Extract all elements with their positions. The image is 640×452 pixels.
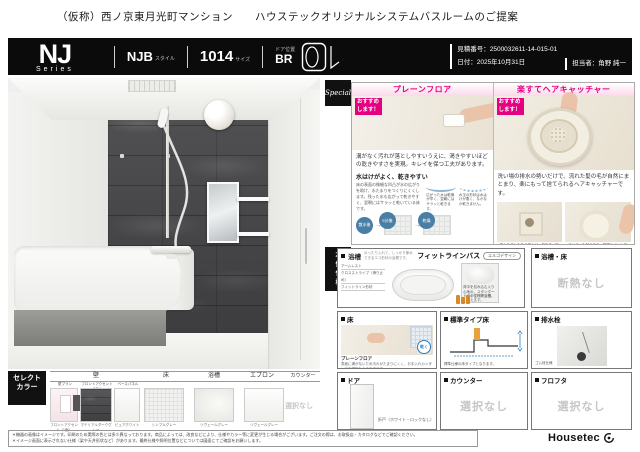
person-label: 担当者： bbox=[572, 60, 598, 67]
ceiling-vent-icon bbox=[128, 80, 176, 92]
dry-stamp: 乾く bbox=[417, 340, 431, 354]
wall-hook bbox=[120, 154, 124, 158]
special-panels: プレーンフロア おすすめ します！ 溝がなく汚れが落としやすいうえに、渇きやすい… bbox=[351, 82, 635, 245]
divider bbox=[187, 46, 188, 68]
step-circle: 散水後 bbox=[356, 217, 373, 234]
floor-tile-sample: 乾燥 bbox=[423, 215, 451, 235]
panel2-body: 洗い場の排水の勢いだけで、流れた髪の毛が自然にまとまり、楽にもって捨てられるヘア… bbox=[494, 170, 635, 200]
mirror bbox=[207, 182, 239, 243]
door-position-value: BR bbox=[275, 53, 295, 65]
series-logo: NJ Series bbox=[36, 41, 74, 73]
bathtub-product-name: フィットラインバス bbox=[417, 251, 480, 261]
spec-counter: カウンター 選択なし bbox=[440, 372, 528, 430]
lid-header: フロフタ bbox=[535, 375, 628, 385]
shampoo-bottles-icon bbox=[456, 295, 470, 304]
footer-notes: ＊機器の画像はイメージです。印刷のため実際の色とは多少異なっております。商品によ… bbox=[8, 430, 478, 447]
bathtub-swatch bbox=[194, 388, 234, 422]
divider bbox=[262, 46, 263, 68]
bathtub-annotations: アームレスト クロスストライプ（滑り止め） フィットライン形状 bbox=[341, 263, 385, 303]
select-color-badge: セレクト カラー bbox=[8, 371, 46, 405]
housetec-logo: Housetec bbox=[548, 432, 615, 444]
floor-swatch bbox=[144, 388, 184, 422]
bathtub-label: 浴槽 bbox=[348, 251, 361, 261]
recommend-badge: おすすめ します！ bbox=[497, 98, 524, 115]
bullet-square-icon bbox=[444, 317, 448, 321]
wall-plan-label: 壁プラン bbox=[50, 382, 80, 387]
bathtub bbox=[14, 246, 182, 312]
header-wall: 壁 bbox=[50, 372, 142, 381]
housetec-logo-text: Housetec bbox=[548, 432, 600, 444]
size-spec: 1014 サイズ bbox=[200, 49, 250, 64]
spec-grid: 浴槽 ゆったり入れて、しっかり節水できるエコ形状の浴槽です。 フィットラインバス… bbox=[337, 248, 632, 430]
style-spec: NJB スタイル bbox=[127, 50, 175, 63]
header-bathtub: 浴槽 bbox=[190, 372, 238, 381]
series-sub: Series bbox=[36, 66, 74, 73]
foot-illustration bbox=[367, 333, 385, 343]
spec-bath-floor-insulation: 浴槽・床 断熱なし bbox=[531, 248, 632, 308]
spec-drain-plug: 排水栓 ゴム栓仕様 bbox=[531, 311, 632, 369]
panel2-subphotos bbox=[494, 200, 635, 242]
drain-caption: ゴム栓仕様 bbox=[535, 361, 553, 366]
tub-apron bbox=[14, 310, 166, 346]
round-light bbox=[204, 100, 234, 130]
floor-type-diagram bbox=[444, 326, 524, 362]
accent-panel-swatch bbox=[80, 388, 112, 422]
panel-plain-floor: プレーンフロア おすすめ します！ 溝がなく汚れが落としやすいうえに、渇きやすい… bbox=[352, 83, 493, 244]
size-value: 1014 bbox=[200, 49, 233, 64]
spec-floor-type: 標準タイプ床 標準仕様の床タイプとなります。 bbox=[440, 311, 528, 369]
annotation: フィットライン形状 bbox=[341, 284, 385, 291]
bottle-icon bbox=[456, 295, 460, 304]
quote-number-value: 2500032611-14-015-01 bbox=[490, 46, 557, 53]
panel2-caption2: まとまった髪の毛も、簡単にポイ！捨てられます。 bbox=[565, 242, 631, 244]
floor-type-header: 標準タイプ床 bbox=[444, 314, 524, 324]
select-color-badge-line1: セレクト bbox=[8, 374, 46, 383]
lid-label: フロフタ bbox=[541, 375, 567, 385]
water-spread-icon bbox=[426, 182, 456, 192]
plug-chain-icon bbox=[582, 332, 590, 353]
bottle-icon bbox=[461, 297, 465, 304]
shower-hose bbox=[138, 122, 208, 262]
cross-section-diagram bbox=[444, 326, 526, 362]
bathtub-header: 浴槽 ゆったり入れて、しっかり節水できるエコ形状の浴槽です。 フィットラインバス… bbox=[341, 251, 521, 261]
floor-type-label: 標準タイプ床 bbox=[450, 314, 489, 324]
sponge-illustration bbox=[443, 114, 465, 127]
bullet-square-icon bbox=[341, 378, 345, 382]
bullet-square-icon bbox=[535, 317, 539, 321]
render-door-handle bbox=[305, 228, 307, 264]
bathroom-render bbox=[8, 78, 320, 369]
housetec-swirl-icon bbox=[603, 432, 615, 444]
base-panel-swatch bbox=[114, 388, 140, 422]
spec-bathtub: 浴槽 ゆったり入れて、しっかり節水できるエコ形状の浴槽です。 フィットラインバス… bbox=[337, 248, 525, 308]
recommend-badge: おすすめ します！ bbox=[355, 98, 382, 115]
drain-label: 排水栓 bbox=[541, 314, 561, 324]
dispose-photo bbox=[565, 202, 631, 242]
dry-steps: 散水後 → 5分後 → 乾燥 bbox=[352, 213, 493, 237]
bathtub-note: ゆったり入れて、しっかり節水できるエコ形状の浴槽です。 bbox=[364, 251, 414, 261]
apron-caption: リヴェールグレー bbox=[244, 423, 284, 428]
rubber-plug-icon bbox=[577, 352, 586, 361]
panel1-header: プレーンフロア bbox=[352, 83, 493, 96]
person-value: 角野 純一 bbox=[598, 60, 626, 67]
quote-block: 見積番号：2500032611-14-015-01 日付：2025年10月31日 bbox=[450, 44, 557, 69]
panel1-note2: 水玉の形状は水はけが悪く、なかなか乾きません。 bbox=[459, 182, 489, 213]
bottle-note: 中性洗剤で洗えます。 bbox=[470, 294, 494, 303]
bathtub-caption: リヴェールグレー bbox=[194, 423, 234, 428]
panel1-subbody: 床の表面の微細な凹凸が水の広がりを助け、水たまりをつくりにくくします。残った水も… bbox=[356, 182, 423, 213]
quote-info: 見積番号：2500032611-14-015-01 日付：2025年10月31日… bbox=[450, 42, 626, 71]
select-color-badge-line2: カラー bbox=[8, 383, 46, 392]
quote-number-label: 見積番号： bbox=[457, 46, 490, 53]
wall-plan-swatch bbox=[50, 388, 78, 422]
held-ring-icon bbox=[579, 210, 613, 242]
header-floor: 床 bbox=[142, 372, 190, 381]
select-color-headers: 壁 床 浴槽 エプロン カウンター bbox=[50, 371, 320, 382]
panel1-subtitle: 水はけがよく、乾きやすい bbox=[352, 172, 493, 181]
footer-note2: ＊イメージ画面に表示されない仕様（梁や天井形状など）があります。最終仕様や照明位… bbox=[12, 438, 474, 444]
divider bbox=[114, 46, 115, 68]
panel1-note2-text: 水玉の形状は水はけが悪く、なかなか乾きません。 bbox=[459, 193, 489, 208]
select-color-table: 壁 床 浴槽 エプロン カウンター 壁プラン フロントアクセントパネル ベースパ… bbox=[50, 371, 320, 431]
spec-door: ドア 折戸（ホワイト・ロックなし） bbox=[337, 372, 437, 430]
style-label: スタイル bbox=[155, 57, 175, 62]
date-value: 2025年10月31日 bbox=[477, 59, 525, 66]
panel1-note1-text: 広がった水は乾燥が早く、翌朝にはサラッと乾きます。 bbox=[426, 193, 456, 213]
counter-header: カウンター bbox=[444, 375, 524, 385]
header-counter: カウンター bbox=[286, 372, 320, 381]
hair-catcher-ring bbox=[528, 108, 592, 166]
step-circle: 乾燥 bbox=[418, 212, 435, 229]
square-drain-icon bbox=[519, 212, 543, 236]
bathtub-body: アームレスト クロスストライプ（滑り止め） フィットライン形状 背中を包み込む入… bbox=[341, 263, 521, 303]
floor-photo: 乾く bbox=[341, 325, 433, 355]
person-block: 担当者：角野 純一 bbox=[565, 58, 626, 70]
ergo-shape-badge: エルゴデザイン bbox=[483, 252, 521, 260]
size-label: サイズ bbox=[235, 58, 250, 63]
counter-none-value: 選択なし bbox=[278, 401, 320, 411]
counter-label: カウンター bbox=[450, 375, 483, 385]
quote-number-row: 見積番号：2500032611-14-015-01 bbox=[457, 44, 557, 56]
spec-bath-lid: フロフタ 選択なし bbox=[531, 372, 632, 430]
counter-value: 選択なし bbox=[441, 398, 527, 414]
bathtub-illustration bbox=[388, 263, 458, 303]
bath-floor-label: 浴槽・床 bbox=[541, 251, 567, 261]
bullet-square-icon bbox=[341, 317, 345, 321]
floor-label: 床 bbox=[347, 314, 354, 324]
render-door-edge bbox=[300, 98, 301, 360]
bullet-square-icon bbox=[444, 378, 448, 382]
lid-value: 選択なし bbox=[532, 398, 631, 414]
tub-inner bbox=[400, 275, 446, 295]
floor-type-caption: 標準仕様の床タイプとなります。 bbox=[444, 362, 524, 367]
bath-floor-value: 断熱なし bbox=[532, 275, 631, 291]
render-right-wall bbox=[268, 90, 320, 369]
faucet-spout bbox=[166, 254, 176, 259]
base-panel-label: ベースパネル bbox=[114, 382, 142, 387]
date-row: 日付：2025年10月31日 bbox=[457, 57, 557, 69]
floor-caption: シンプルグレー bbox=[144, 423, 184, 428]
special-badge-label: Special bbox=[325, 89, 351, 97]
panel-hair-catcher: 楽すてヘアキャッチャー おすすめ します！ 洗い場の排水の勢いだけで、流れた髪の… bbox=[493, 83, 635, 244]
panel2-captions: 排水を流した後の排水が、渦をまく形状です。 まとまった髪の毛も、簡単にポイ！捨て… bbox=[494, 242, 635, 244]
base-caption: ピュアホワイト bbox=[114, 423, 140, 428]
drain-photo bbox=[557, 326, 607, 366]
wall-shelf bbox=[237, 197, 269, 201]
floor-description: 表面に溝がないため汚れがたまりにくく、お手入れカンタンでお掃除もラクな床です。 bbox=[341, 362, 433, 369]
annotation: アームレスト bbox=[341, 263, 385, 270]
hand-illustration bbox=[618, 203, 634, 235]
bullet-square-icon bbox=[535, 254, 539, 258]
page-title: （仮称）西ノ京東月光町マンション ハウステックオリジナルシステムバスルームのご提… bbox=[57, 9, 518, 24]
drain-photo bbox=[497, 202, 563, 242]
panel1-subrow: 床の表面の微細な凹凸が水の広がりを助け、水たまりをつくりにくくします。残った水も… bbox=[352, 181, 493, 214]
special-badge: Special bbox=[325, 80, 351, 106]
header-apron: エプロン bbox=[238, 372, 286, 381]
style-value: NJB bbox=[127, 50, 153, 63]
wall-shelf bbox=[237, 232, 269, 236]
panel1-body: 溝がなく汚れが落としやすいうえに、渇きやすいほどの乾きやすさを実現。キレイを保つ… bbox=[352, 150, 493, 172]
series-name: NJ bbox=[36, 41, 74, 68]
bullet-square-icon bbox=[535, 378, 539, 382]
panel1-note1: 広がった水は乾燥が早く、翌朝にはサラッと乾きます。 bbox=[426, 182, 456, 213]
water-drop-icon bbox=[459, 182, 489, 192]
door-image bbox=[350, 384, 374, 429]
annotation: クロスストライプ（滑り止め） bbox=[341, 270, 385, 284]
product-header-bar: NJ Series NJB スタイル 1014 サイズ ドア位置 BR 見積番号… bbox=[8, 38, 632, 75]
door-position-spec: ドア位置 BR bbox=[275, 42, 341, 72]
date-label: 日付： bbox=[457, 59, 477, 66]
door-position-icon bbox=[301, 42, 341, 72]
door-caption: 折戸（ホワイト・ロックなし） bbox=[378, 417, 434, 423]
hair-catcher-inner bbox=[540, 119, 578, 153]
panel2-caption1: 排水を流した後の排水が、渦をまく形状です。 bbox=[497, 242, 563, 244]
bullet-square-icon bbox=[341, 254, 345, 258]
faucet bbox=[151, 246, 191, 253]
floor-tile-sample: 5分後 bbox=[384, 215, 412, 235]
step-circle: 5分後 bbox=[379, 212, 396, 229]
floor-header: 床 bbox=[341, 314, 433, 324]
bath-floor-header: 浴槽・床 bbox=[535, 251, 628, 261]
spec-floor: 床 乾く プレーンフロア 表面に溝がないため汚れがたまりにくく、お手入れカンタン… bbox=[337, 311, 437, 369]
tub-photo bbox=[466, 266, 494, 284]
hair-catcher-holes bbox=[550, 127, 566, 142]
panel1-title: プレーンフロア bbox=[393, 84, 452, 95]
drain-header: 排水栓 bbox=[535, 314, 628, 324]
